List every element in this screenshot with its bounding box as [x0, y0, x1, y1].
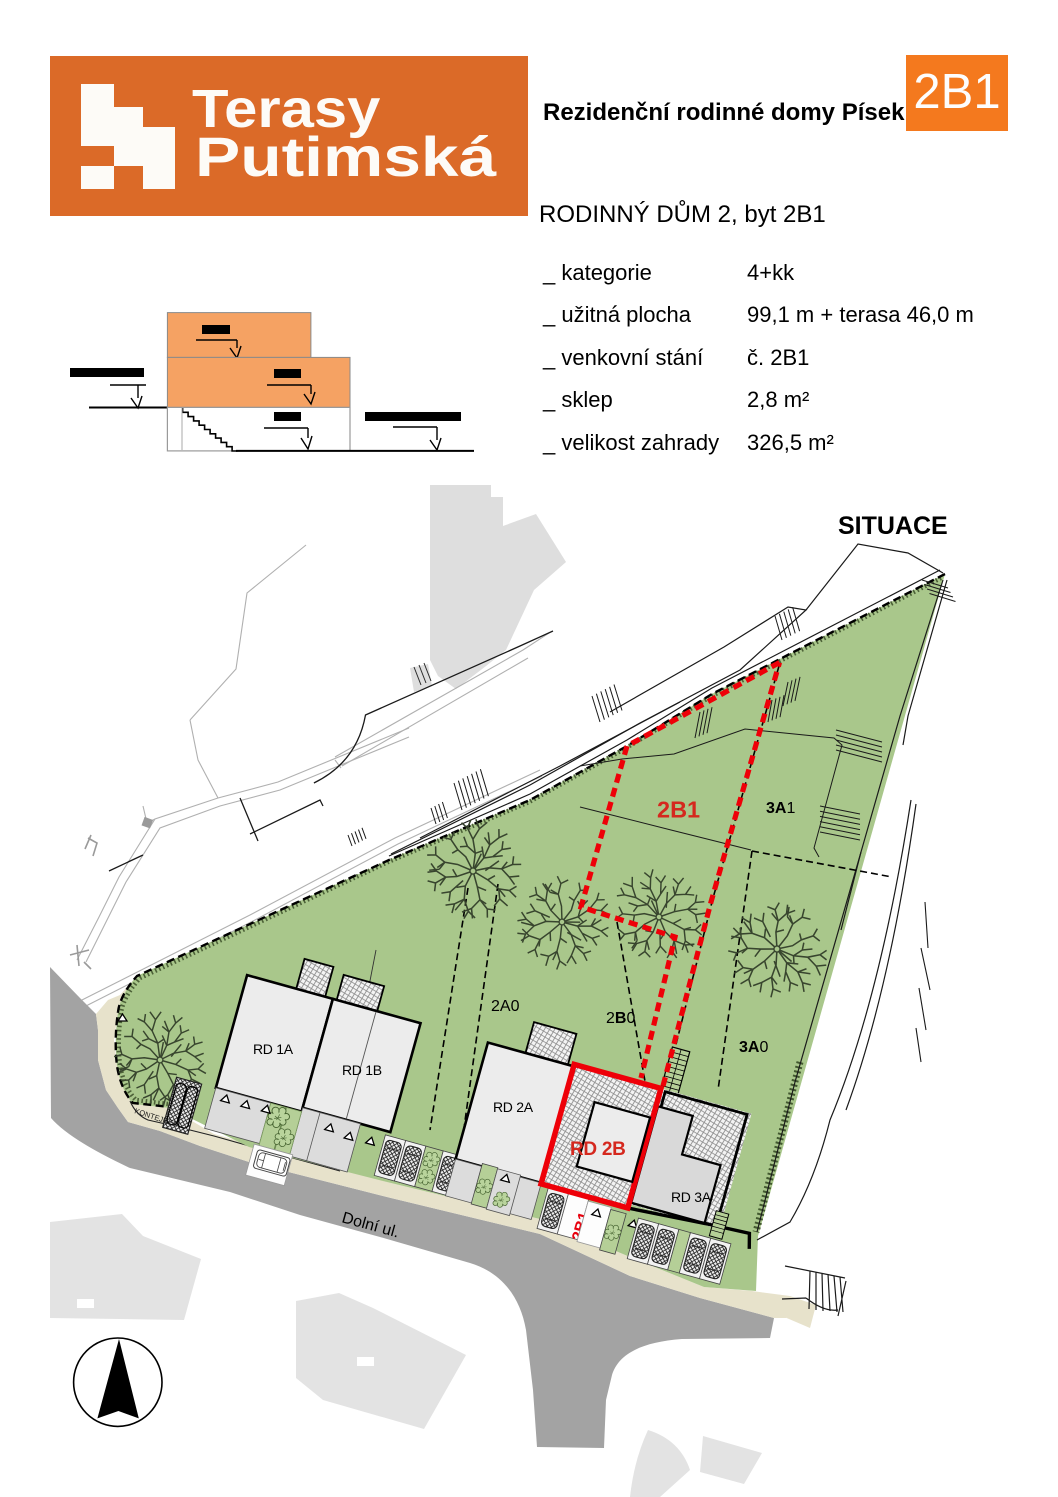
svg-text:2B0: 2B0 [606, 1010, 635, 1027]
svg-text:RD 3A: RD 3A [671, 1189, 712, 1205]
svg-text:SITUACE: SITUACE [838, 512, 948, 540]
svg-text:RD 1A: RD 1A [253, 1041, 294, 1057]
svg-text:3A0: 3A0 [739, 1039, 768, 1056]
svg-text:2B1: 2B1 [657, 797, 700, 823]
svg-text:2A0: 2A0 [491, 998, 520, 1015]
svg-text:RD 1B: RD 1B [342, 1062, 382, 1078]
svg-text:3A1: 3A1 [766, 800, 795, 817]
svg-text:RD 2B: RD 2B [570, 1139, 626, 1160]
svg-text:RD 2A: RD 2A [493, 1099, 534, 1115]
